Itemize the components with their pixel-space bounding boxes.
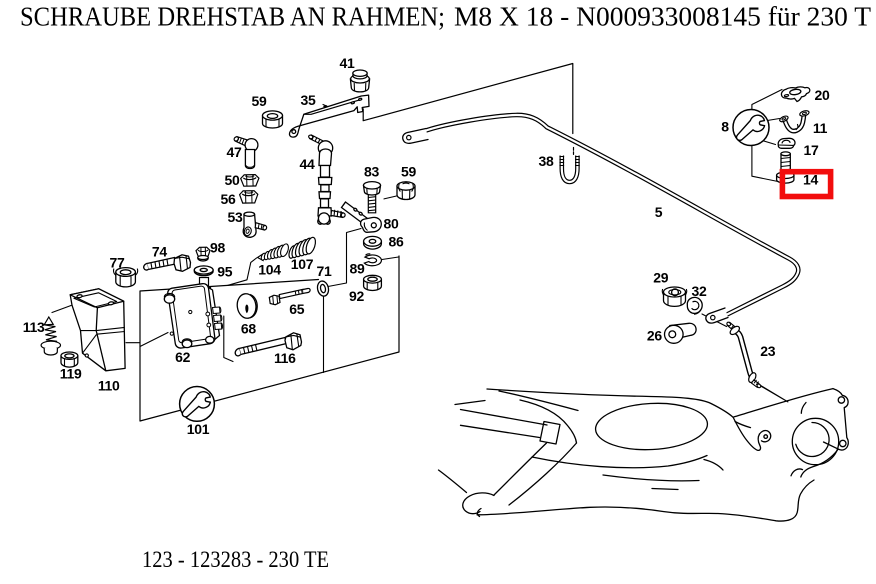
svg-text:71: 71: [317, 263, 332, 279]
svg-text:35: 35: [301, 92, 316, 108]
svg-text:41: 41: [340, 55, 355, 71]
svg-text:104: 104: [258, 262, 281, 278]
svg-text:44: 44: [300, 156, 315, 172]
svg-text:62: 62: [175, 349, 190, 365]
svg-text:20: 20: [815, 87, 830, 103]
svg-text:23: 23: [760, 343, 775, 359]
svg-text:SCHRAUBE DREHSTAB AN RAHMEN;: SCHRAUBE DREHSTAB AN RAHMEN;: [20, 2, 445, 32]
svg-text:53: 53: [228, 209, 243, 225]
svg-text:38: 38: [539, 153, 554, 169]
svg-text:119: 119: [60, 366, 82, 382]
svg-text:110: 110: [98, 378, 120, 394]
svg-text:8: 8: [721, 119, 729, 135]
svg-text:29: 29: [653, 270, 668, 286]
svg-text:77: 77: [110, 255, 125, 271]
svg-text:98: 98: [210, 240, 225, 256]
svg-text:107: 107: [291, 256, 314, 272]
svg-text:68: 68: [241, 321, 256, 337]
svg-text:32: 32: [692, 283, 707, 299]
svg-text:86: 86: [389, 234, 404, 250]
svg-text:5: 5: [655, 204, 663, 220]
svg-text:92: 92: [349, 288, 364, 304]
svg-text:56: 56: [221, 191, 236, 207]
svg-text:80: 80: [384, 216, 399, 232]
svg-text:116: 116: [274, 350, 296, 366]
svg-text:95: 95: [217, 264, 232, 280]
svg-text:59: 59: [401, 164, 416, 180]
svg-text:113: 113: [23, 319, 45, 335]
svg-text:17: 17: [804, 142, 819, 158]
svg-text:65: 65: [289, 301, 304, 317]
svg-text:11: 11: [813, 120, 828, 136]
svg-text:83: 83: [364, 164, 379, 180]
svg-text:74: 74: [152, 244, 167, 260]
svg-text:14: 14: [803, 172, 818, 188]
svg-text:101: 101: [187, 421, 210, 437]
svg-text:M8 X 18 - N000933008145 für 23: M8 X 18 - N000933008145 für 230 T: [454, 2, 872, 32]
svg-text:47: 47: [227, 144, 242, 160]
svg-text:26: 26: [647, 328, 662, 344]
svg-text:50: 50: [225, 172, 240, 188]
svg-text:59: 59: [252, 93, 267, 109]
svg-text:123 - 123283 - 230 TE: 123 - 123283 - 230 TE: [142, 547, 329, 573]
svg-text:89: 89: [350, 261, 365, 277]
